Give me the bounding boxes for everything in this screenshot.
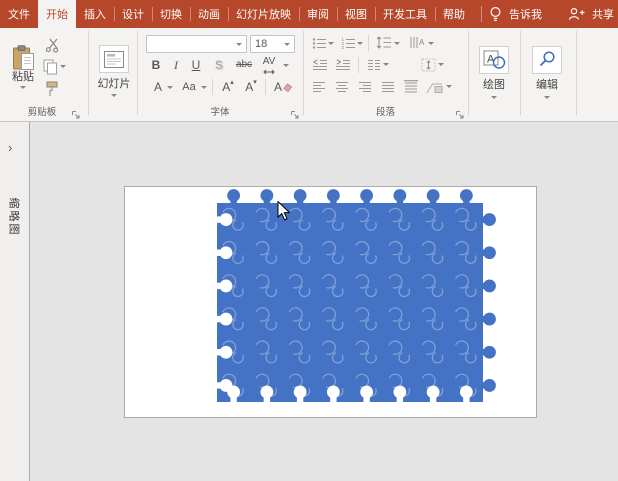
tabbar-right-cluster: 告诉我 共享 <box>481 0 614 28</box>
align-center-button[interactable] <box>334 80 349 93</box>
cut-button[interactable] <box>44 37 62 53</box>
puzzle-top-knob <box>327 189 340 202</box>
copy-icon <box>43 59 58 75</box>
puzzle-right-knob <box>483 379 496 392</box>
paste-button[interactable]: 粘贴 <box>5 34 41 100</box>
puzzle-left-socket <box>220 346 233 359</box>
font-group-label: 字体 <box>137 104 303 118</box>
font-color-button[interactable]: A <box>150 79 166 95</box>
font-name-combo[interactable] <box>146 35 247 53</box>
puzzle-top-knob <box>294 189 307 202</box>
tab-view[interactable]: 视图 <box>337 0 375 28</box>
text-shadow-button[interactable]: S <box>211 57 227 73</box>
spacing-caret[interactable] <box>283 64 289 67</box>
distribute-icon <box>403 80 419 94</box>
thumbnail-panel-collapsed[interactable]: › 缩略图 <box>0 122 30 481</box>
tab-help[interactable]: 帮助 <box>435 0 473 28</box>
editing-caret <box>544 96 550 99</box>
justify-icon <box>381 81 395 93</box>
group-divider <box>576 31 577 115</box>
puzzle-shape[interactable] <box>216 186 498 404</box>
puzzle-left-socket <box>220 213 233 226</box>
puzzle-left-socket <box>220 313 233 326</box>
grow-arrow: ▴ <box>230 78 234 86</box>
numbering-button[interactable]: 123 <box>340 36 356 50</box>
powerpoint-window: 文件开始插入设计切换动画幻灯片放映审阅视图开发工具帮助 告诉我 共享 <box>0 0 618 481</box>
font-dialog-launcher[interactable] <box>290 107 300 117</box>
font-size-combo[interactable]: 18 <box>250 35 295 53</box>
copy-button[interactable] <box>42 59 58 75</box>
puzzle-right-knob <box>483 346 496 359</box>
search-icon <box>532 46 562 74</box>
puzzle-top-knob <box>393 189 406 202</box>
bullets-icon <box>312 37 327 50</box>
decrease-indent-icon <box>312 59 328 71</box>
underline-button[interactable]: U <box>188 57 204 73</box>
text-direction-button[interactable]: A <box>408 35 426 50</box>
tab-insert[interactable]: 插入 <box>76 0 114 28</box>
font-size-value: 18 <box>255 38 267 50</box>
tab-home[interactable]: 开始 <box>38 0 76 28</box>
change-case-caret[interactable] <box>201 86 207 89</box>
bullets-caret[interactable] <box>328 42 334 45</box>
puzzle-top-knob <box>427 189 440 202</box>
line-spacing-caret[interactable] <box>394 42 400 45</box>
ribbon: 粘贴 剪贴板 幻灯片 <box>0 28 618 122</box>
smartart-caret[interactable] <box>446 85 452 88</box>
columns-caret[interactable] <box>383 63 389 66</box>
paste-label: 粘贴 <box>12 71 34 83</box>
puzzle-left-socket <box>220 379 233 392</box>
thumbnail-panel-label: 缩略图 <box>0 172 29 262</box>
drawing-button[interactable]: A 绘图 <box>474 34 514 110</box>
group-divider <box>137 31 138 115</box>
italic-button[interactable]: I <box>169 57 183 73</box>
clipboard-icon <box>12 45 35 71</box>
shrink-arrow: ▾ <box>253 78 257 86</box>
text-direction-caret[interactable] <box>428 42 434 45</box>
paste-dropdown-caret <box>20 86 26 89</box>
convert-smartart-button[interactable] <box>425 79 443 94</box>
editing-button-label: 编辑 <box>536 79 558 91</box>
puzzle-body <box>217 203 483 402</box>
puzzle-top-knob <box>360 189 373 202</box>
copy-dropdown-caret[interactable] <box>60 65 66 68</box>
mouse-cursor <box>277 201 292 222</box>
tab-file[interactable]: 文件 <box>0 0 38 28</box>
person-add-icon <box>568 7 585 21</box>
puzzle-left-socket <box>220 280 233 293</box>
scissors-icon <box>45 37 61 53</box>
clear-formatting-button[interactable]: A <box>272 78 294 96</box>
tab-animations[interactable]: 动画 <box>190 0 228 28</box>
align-left-icon <box>312 81 326 93</box>
clipboard-dialog-launcher[interactable] <box>71 107 81 117</box>
tab-design[interactable]: 设计 <box>114 0 152 28</box>
puzzle-top-knob <box>227 189 240 202</box>
line-spacing-icon <box>376 36 392 49</box>
group-divider <box>303 31 304 115</box>
tab-developer[interactable]: 开发工具 <box>375 0 435 28</box>
numbering-icon: 123 <box>341 37 356 50</box>
separator <box>212 79 213 95</box>
columns-button[interactable] <box>366 58 381 71</box>
tab-review[interactable]: 审阅 <box>299 0 337 28</box>
increase-indent-icon <box>335 59 351 71</box>
drawing-icon: A <box>479 46 509 74</box>
columns-icon <box>367 59 381 71</box>
format-painter-icon <box>45 81 59 97</box>
align-center-icon <box>335 81 349 93</box>
puzzle-right-knob <box>483 280 496 293</box>
slides-button-label: 幻灯片 <box>98 78 131 90</box>
bullets-button[interactable] <box>311 36 327 50</box>
shrink-font-button[interactable]: A ▾ <box>242 78 260 96</box>
share-button[interactable]: 共享 <box>592 6 614 22</box>
ribbon-tabs: 文件开始插入设计切换动画幻灯片放映审阅视图开发工具帮助 <box>0 0 473 28</box>
slides-dropdown-caret <box>111 94 117 97</box>
svg-text:3: 3 <box>341 45 344 50</box>
puzzle-right-knob <box>483 213 496 226</box>
puzzle-right-knob <box>483 246 496 259</box>
numbering-caret[interactable] <box>357 42 363 45</box>
distribute-button[interactable] <box>402 79 419 94</box>
decrease-indent-button[interactable] <box>311 58 328 71</box>
drawing-caret <box>491 96 497 99</box>
tab-slideshow[interactable]: 幻灯片放映 <box>228 0 299 28</box>
group-divider <box>520 31 521 115</box>
tab-transitions[interactable]: 切换 <box>152 0 190 28</box>
line-spacing-button[interactable] <box>375 35 392 50</box>
paragraph-dialog-launcher[interactable] <box>455 107 465 117</box>
puzzle-top-knob <box>460 189 473 202</box>
separator <box>368 35 369 51</box>
align-text-caret[interactable] <box>438 63 444 66</box>
align-right-button[interactable] <box>357 80 372 93</box>
paragraph-group-label: 段落 <box>303 104 468 118</box>
new-slide-button[interactable]: 幻灯片 <box>95 34 133 108</box>
strikethrough-button[interactable]: abc <box>233 57 255 73</box>
change-case-button[interactable]: Aa <box>179 79 199 95</box>
bold-button[interactable]: B <box>148 57 164 73</box>
group-divider <box>88 31 89 115</box>
font-color-caret[interactable] <box>167 86 173 89</box>
drawing-button-label: 绘图 <box>483 79 505 91</box>
slide-canvas-area: › 缩略图 <box>0 122 618 481</box>
increase-indent-button[interactable] <box>334 58 351 71</box>
svg-text:A: A <box>419 38 425 47</box>
separator <box>358 57 359 73</box>
font-size-caret <box>284 43 290 46</box>
eraser-icon <box>283 83 292 92</box>
tabbar-divider <box>481 6 482 22</box>
character-spacing-button[interactable]: AV <box>259 55 279 75</box>
group-divider <box>468 31 469 115</box>
text-direction-icon: A <box>409 36 426 49</box>
align-text-icon <box>421 58 436 72</box>
separator <box>265 79 266 95</box>
puzzle-left-socket <box>220 246 233 259</box>
align-right-icon <box>358 81 372 93</box>
ribbon-tab-bar: 文件开始插入设计切换动画幻灯片放映审阅视图开发工具帮助 告诉我 共享 <box>0 0 618 28</box>
format-painter-button[interactable] <box>44 80 60 97</box>
tell-me-button[interactable]: 告诉我 <box>509 6 542 22</box>
lightbulb-icon <box>489 6 502 23</box>
spacing-arrow-icon <box>263 69 275 75</box>
justify-button[interactable] <box>380 80 395 93</box>
puzzle-top-knob <box>260 189 273 202</box>
editing-button[interactable]: 编辑 <box>527 34 567 110</box>
new-slide-icon <box>99 45 129 73</box>
expand-chevron-icon[interactable]: › <box>8 140 12 155</box>
puzzle-right-knob <box>483 313 496 326</box>
grow-font-button[interactable]: A ▴ <box>219 78 237 96</box>
font-name-caret <box>236 43 242 46</box>
align-left-button[interactable] <box>311 80 326 93</box>
align-text-button[interactable] <box>420 57 436 72</box>
smartart-icon <box>426 80 443 94</box>
